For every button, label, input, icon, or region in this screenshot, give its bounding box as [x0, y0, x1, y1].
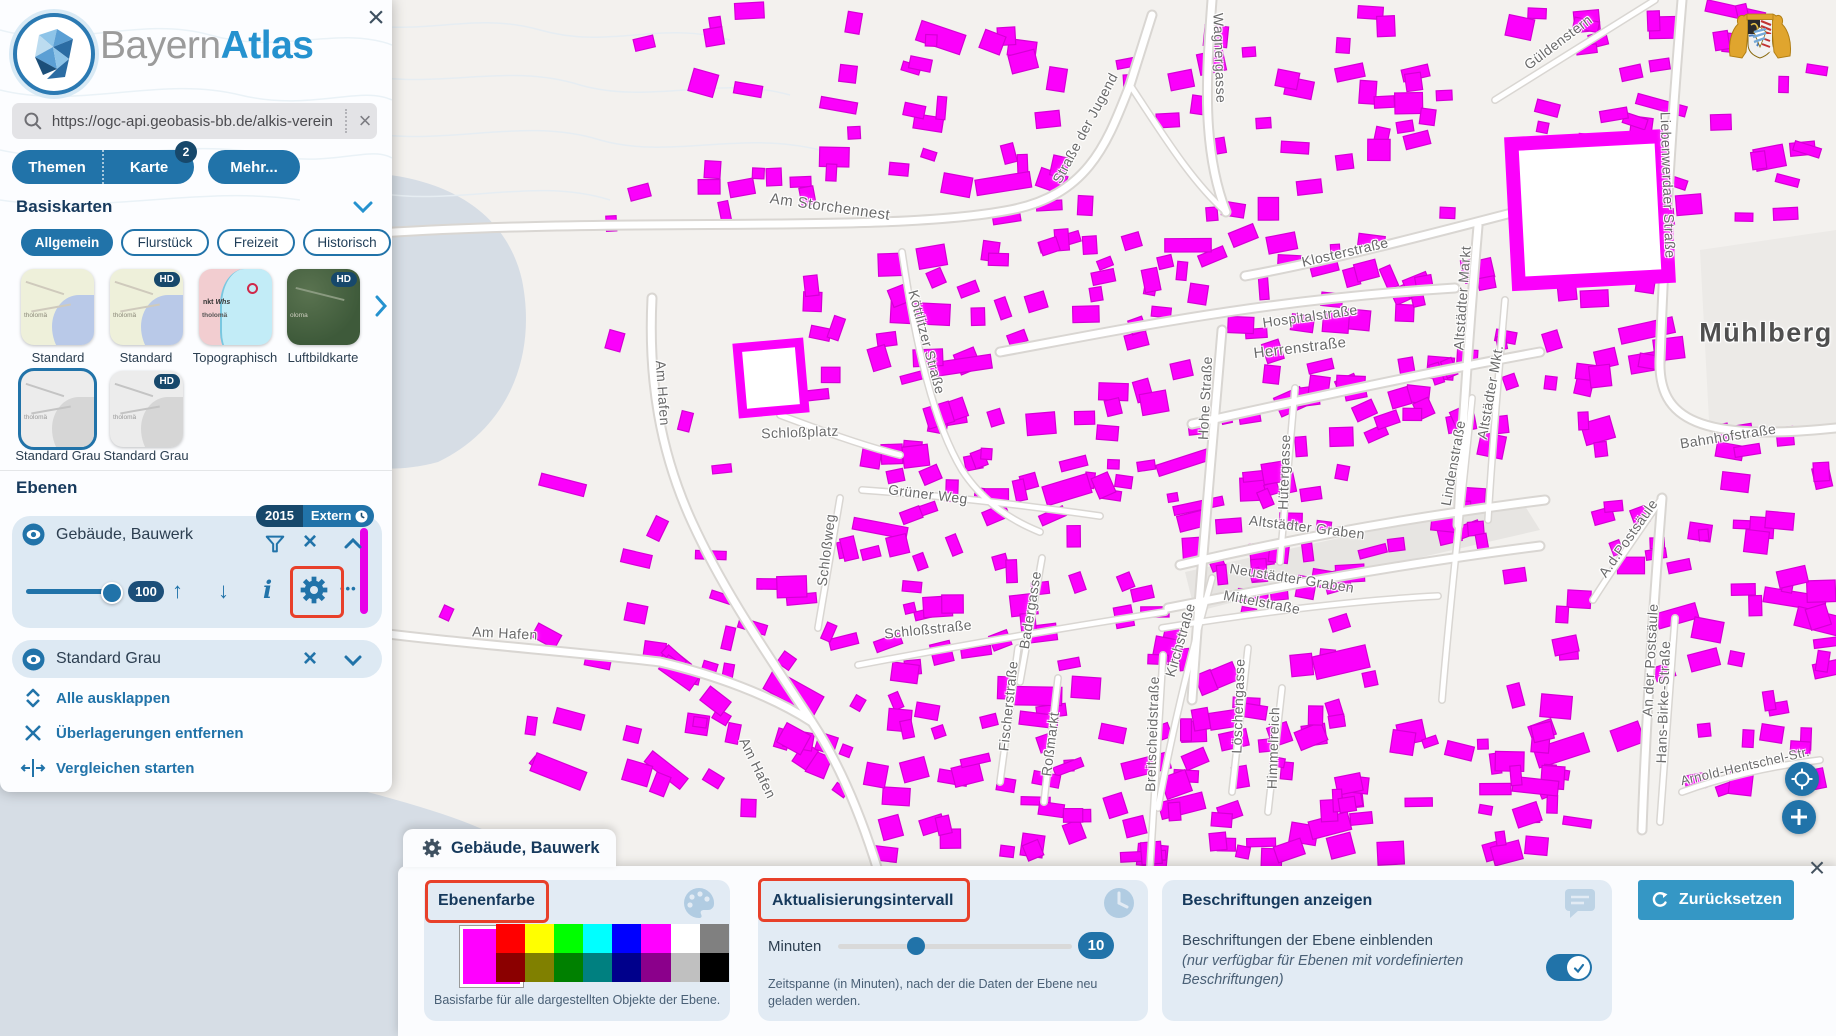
zoom-in-button[interactable] [1782, 800, 1816, 834]
street-label: Mühlberg [1699, 318, 1833, 349]
layer-settings-panel: × Ebenenfarbe Basisfarbe für alle darges… [398, 866, 1836, 1036]
palette-swatch[interactable] [641, 924, 670, 953]
opacity-value-badge: 100 [128, 581, 164, 602]
collapse-layer-icon[interactable] [343, 537, 363, 550]
basemap-label: Standard Grau [13, 448, 103, 463]
palette-swatch[interactable] [583, 953, 612, 982]
chip-allgemein[interactable]: Allgemein [21, 229, 113, 256]
basiskarten-heading: Basiskarten [16, 197, 112, 217]
close-sidebar-icon[interactable]: × [360, 2, 392, 34]
extern-badge: Extern [303, 505, 374, 527]
move-down-icon[interactable]: ↓ [218, 578, 229, 604]
basemap-label: Standard [101, 350, 191, 365]
palette-swatch[interactable] [525, 924, 554, 953]
link-alle-ausklappen[interactable]: Alle ausklappen [56, 690, 170, 707]
chip-flurstueck[interactable]: Flurstück [121, 229, 209, 256]
contour-lines [340, 20, 820, 200]
layer-name: Standard Grau [56, 650, 161, 668]
ebenenfarbe-caption: Basisfarbe für alle dargestellten Objekt… [434, 992, 724, 1009]
brand-atlas: Atlas [221, 24, 314, 67]
labels-toggle-note: (nur verfügbar für Ebenen mit vordefinie… [1182, 952, 1522, 990]
remove-layer-icon[interactable]: × [303, 645, 317, 673]
settings-tab-title: Gebäude, Bauwerk [451, 839, 600, 858]
palette-swatch[interactable] [700, 924, 729, 953]
labels-icon [1562, 886, 1598, 920]
layer-settings-tab[interactable]: Gebäude, Bauwerk [403, 829, 616, 867]
palette-swatch[interactable] [554, 924, 583, 953]
palette-swatch[interactable] [612, 953, 641, 982]
interval-value-badge: 10 [1078, 932, 1114, 959]
tab-mehr[interactable]: Mehr... [208, 150, 300, 184]
year-badge: 2015 [256, 505, 303, 527]
brand-title: BayernAtlas [100, 24, 313, 68]
palette-swatch[interactable] [525, 953, 554, 982]
remove-overlays-icon[interactable] [20, 720, 46, 746]
reset-icon [1650, 890, 1670, 910]
basemap-standard[interactable]: tholomä [21, 269, 94, 345]
interval-title: Aktualisierungsintervall [772, 892, 953, 910]
palette-icon [680, 884, 718, 922]
hd-badge: HD [331, 272, 357, 287]
more-options-icon[interactable]: ••• [340, 581, 357, 596]
reset-button[interactable]: Zurücksetzen [1638, 880, 1794, 920]
search-icon [23, 111, 43, 131]
expand-layer-icon[interactable] [343, 654, 363, 667]
palette-swatch[interactable] [496, 953, 525, 982]
visibility-icon[interactable] [22, 523, 45, 546]
basemap-label: Topographisch [190, 350, 280, 365]
interval-slider-thumb[interactable] [907, 937, 925, 955]
castle-building [737, 342, 805, 413]
settings-icon [421, 837, 443, 859]
large-building-complex [1511, 136, 1668, 284]
palette-swatch[interactable] [641, 953, 670, 982]
ebenenfarbe-title: Ebenenfarbe [438, 892, 535, 910]
layer-name: Gebäude, Bauwerk [56, 526, 193, 544]
brand-bayern: Bayern [100, 24, 221, 67]
zoom-in-icon [1789, 807, 1809, 827]
close-panel-icon[interactable]: × [1802, 852, 1832, 884]
tab-themen[interactable]: Themen [12, 150, 102, 184]
labels-toggle[interactable] [1546, 954, 1592, 981]
palette-swatch[interactable] [612, 924, 641, 953]
ebenenfarbe-card: Ebenenfarbe Basisfarbe für alle dargeste… [424, 880, 730, 1021]
interval-caption: Zeitspanne (in Minuten), nach der die Da… [768, 976, 1113, 1010]
hd-badge: HD [154, 272, 180, 287]
interval-unit-label: Minuten [768, 938, 821, 955]
street-label: Wagnergasse [1210, 13, 1229, 104]
search-bar: × [12, 103, 377, 139]
link-vergleichen-starten[interactable]: Vergleichen starten [56, 760, 194, 777]
basemap-label: Standard Grau [101, 448, 191, 463]
basemap-standard-hd[interactable]: HD tholomä [110, 269, 183, 345]
next-basemaps-icon[interactable] [374, 294, 388, 318]
basemap-standard-grau-selected[interactable]: tholomä [21, 371, 94, 447]
palette-swatch[interactable] [496, 924, 525, 953]
search-divider [345, 109, 347, 133]
filter-icon[interactable] [264, 533, 286, 555]
remove-layer-icon[interactable]: × [303, 528, 317, 556]
basemap-luftbildkarte[interactable]: HD oloma [287, 269, 360, 345]
chip-freizeit[interactable]: Freizeit [217, 229, 295, 256]
bayernatlas-logo[interactable] [13, 13, 95, 95]
palette-swatch[interactable] [583, 924, 612, 953]
street-label: Am Hafen [472, 623, 538, 642]
opacity-slider-thumb[interactable] [101, 582, 123, 604]
karte-count-badge: 2 [175, 141, 197, 163]
labels-title: Beschriftungen anzeigen [1182, 892, 1372, 910]
palette-swatch[interactable] [700, 953, 729, 982]
check-icon [1572, 961, 1586, 975]
bavaria-coat-of-arms [1728, 8, 1792, 67]
color-palette [496, 924, 729, 982]
street-label: Schloßplatz [761, 423, 839, 442]
clear-search-icon[interactable]: × [353, 108, 377, 134]
ebenen-heading: Ebenen [16, 478, 77, 498]
basiskarten-collapse-icon[interactable] [352, 200, 374, 214]
geolocate-icon [1791, 768, 1813, 790]
hd-badge: HD [154, 374, 180, 389]
labels-toggle-label: Beschriftungen der Ebene einblenden [1182, 932, 1433, 949]
building-footprints [439, 0, 1836, 869]
basemap-label: Luftbildkarte [278, 350, 368, 365]
interval-card: Aktualisierungsintervall Minuten 10 Zeit… [758, 880, 1148, 1021]
clock-icon [1100, 884, 1138, 922]
visibility-icon[interactable] [22, 648, 45, 671]
sidebar: × BayernAtlas × [0, 0, 392, 792]
info-icon[interactable]: i [263, 575, 272, 604]
palette-swatch[interactable] [671, 924, 700, 953]
extern-info-icon [355, 510, 368, 523]
compare-icon[interactable] [20, 755, 46, 781]
street-label: Hütergasse [1275, 434, 1294, 510]
reset-button-label: Zurücksetzen [1679, 891, 1782, 909]
layer-badges: 2015 Extern [256, 505, 374, 527]
settings-icon[interactable] [298, 574, 330, 606]
palette-swatch[interactable] [554, 953, 583, 982]
chip-historisch[interactable]: Historisch [303, 229, 391, 256]
divider [0, 470, 392, 471]
basemap-topographisch[interactable]: nkt Whs tholomä [199, 269, 272, 345]
basemap-label: Standard [13, 350, 103, 365]
expand-all-icon[interactable] [20, 685, 46, 711]
search-input[interactable] [50, 112, 339, 131]
street-label: Himmelreich [1264, 707, 1283, 790]
basemap-standard-grau-hd[interactable]: HD tholomä [110, 371, 183, 447]
palette-swatch[interactable] [671, 953, 700, 982]
opacity-slider-track[interactable] [26, 589, 110, 594]
move-up-icon[interactable]: ↑ [172, 578, 183, 604]
labels-card: Beschriftungen anzeigen Beschriftungen d… [1162, 880, 1612, 1021]
link-ueberlagerungen-entfernen[interactable]: Überlagerungen entfernen [56, 725, 244, 742]
interval-slider-track[interactable] [838, 944, 1072, 949]
bayernatlas-app: Am StorchennestStraße der JugendWagnerga… [0, 0, 1836, 1036]
street-label: Löschengasse [1228, 658, 1247, 754]
geolocate-button[interactable] [1785, 762, 1819, 796]
